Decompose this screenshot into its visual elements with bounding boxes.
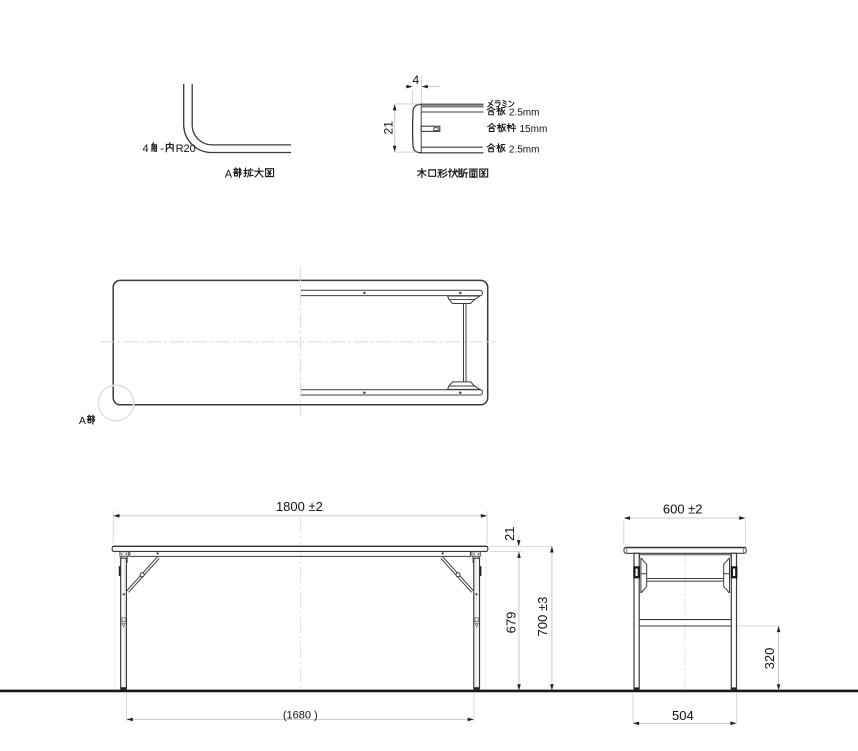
svg-text:2.5mm: 2.5mm	[509, 144, 540, 155]
svg-text:R20: R20	[176, 143, 196, 155]
svg-text:2.5mm: 2.5mm	[509, 107, 540, 118]
svg-text:4: 4	[143, 143, 149, 155]
svg-text:600 ±2: 600 ±2	[663, 501, 703, 516]
svg-text:504: 504	[672, 708, 694, 723]
svg-text:700 ±3: 700 ±3	[535, 597, 550, 637]
svg-text:4: 4	[412, 73, 419, 87]
svg-text:1800 ±2: 1800 ±2	[276, 499, 323, 514]
svg-text:320: 320	[762, 648, 777, 670]
svg-text:15mm: 15mm	[520, 124, 548, 135]
svg-text:21: 21	[502, 527, 517, 541]
svg-text:-: -	[160, 143, 164, 155]
svg-text:21: 21	[381, 121, 395, 135]
svg-text:A: A	[225, 168, 233, 180]
svg-text:679: 679	[504, 612, 519, 634]
svg-text:(1680 ): (1680 )	[283, 709, 318, 721]
svg-text:A: A	[79, 415, 86, 427]
